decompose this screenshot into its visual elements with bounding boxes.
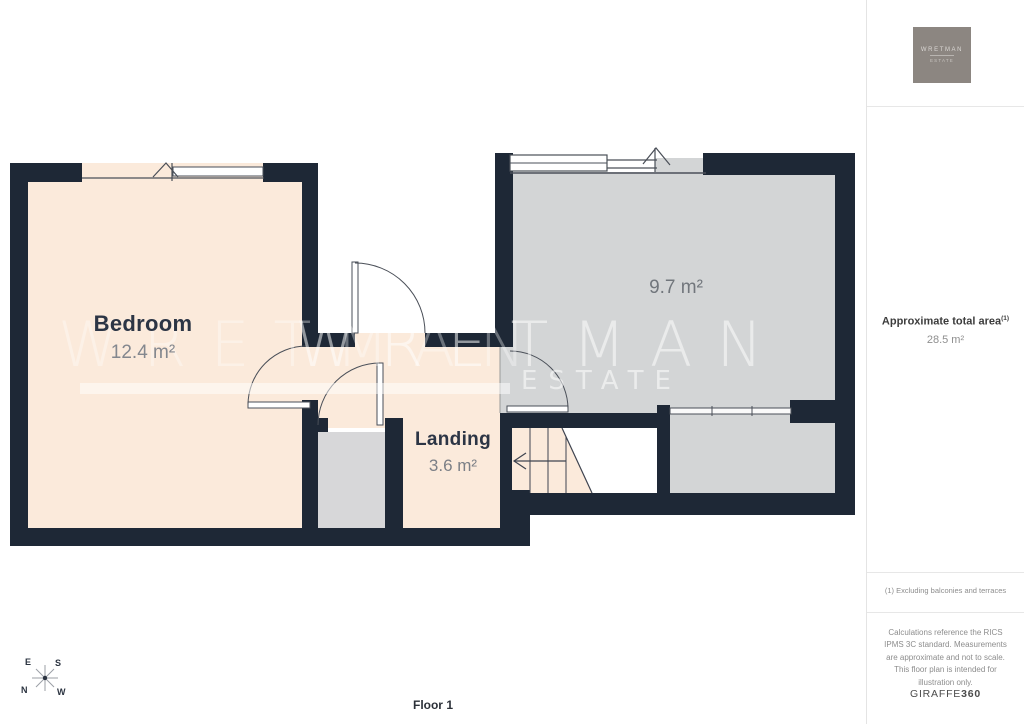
bedroom-label: Bedroom	[40, 311, 246, 337]
total-area-block: Approximate total area(1) 28.5 m²	[867, 315, 1024, 346]
door-arc	[318, 363, 380, 425]
total-area-value: 28.5 m²	[867, 334, 1024, 346]
floor-level-label: Floor 1	[0, 698, 866, 712]
total-area-superscript: (1)	[1001, 315, 1009, 322]
floor-plan: WRETMAN WRETMAN ESTATE Bedroom 12.4 m² 9…	[0, 0, 866, 724]
compass-label-e: E	[25, 657, 31, 667]
footnote: (1) Excluding balconies and terraces	[867, 572, 1024, 613]
brand-name: GIRAFFE	[910, 688, 961, 700]
logo-section: WRETMAN ESTATE	[867, 0, 1024, 107]
door-arc	[510, 351, 568, 409]
window-opening-arrow	[643, 148, 670, 165]
logo-name: WRETMAN	[921, 47, 963, 53]
door-leaf	[507, 406, 568, 412]
stair-void	[562, 428, 657, 493]
compass-label-s: S	[55, 658, 61, 668]
brand-mark: GIRAFFE360	[867, 688, 1024, 700]
brand-suffix: 360	[961, 688, 981, 700]
landing-label: Landing	[403, 429, 503, 451]
landing-area: 3.6 m²	[403, 456, 503, 476]
bedroom-area: 12.4 m²	[40, 342, 246, 364]
compass-label-w: W	[57, 687, 66, 697]
door-leaf	[352, 262, 358, 333]
glass-partition	[670, 408, 791, 414]
door-leaf	[248, 402, 310, 408]
sidebar: WRETMAN ESTATE Approximate total area(1)…	[866, 0, 1024, 724]
door-arc	[248, 346, 307, 405]
floor-plan-page: WRETMAN WRETMAN ESTATE Bedroom 12.4 m² 9…	[0, 0, 1024, 724]
disclaimer: Calculations reference the RICS IPMS 3C …	[867, 613, 1024, 689]
window-pane	[173, 167, 263, 176]
door-leaf	[377, 363, 383, 425]
room2-area: 9.7 m²	[596, 277, 756, 299]
logo-rule	[930, 55, 954, 56]
door-arc	[355, 263, 425, 333]
compass-label-n: N	[21, 685, 28, 695]
brand-logo: WRETMAN ESTATE	[913, 27, 971, 83]
logo-suffix: ESTATE	[930, 58, 954, 63]
total-area-label-text: Approximate total area	[882, 316, 1001, 328]
total-area-label: Approximate total area(1)	[867, 315, 1024, 328]
